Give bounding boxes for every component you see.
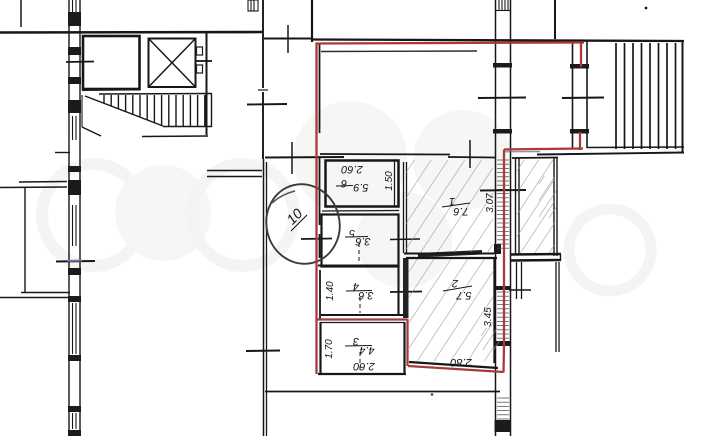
svg-text:2.80: 2.80 (449, 356, 472, 368)
svg-text:1.50: 1.50 (384, 171, 395, 191)
svg-text:3.45: 3.45 (483, 307, 494, 327)
svg-text:4: 4 (353, 280, 359, 292)
svg-text:6: 6 (340, 177, 347, 189)
svg-text:5.7: 5.7 (455, 289, 471, 301)
svg-text:1.70: 1.70 (324, 339, 335, 359)
svg-text:2.60: 2.60 (340, 163, 363, 175)
svg-text:2.60: 2.60 (352, 360, 375, 372)
svg-text:1.40: 1.40 (325, 281, 336, 301)
svg-text:3: 3 (352, 335, 359, 347)
svg-text:3.07: 3.07 (485, 193, 496, 213)
svg-text:2: 2 (452, 277, 459, 289)
svg-text:5.9: 5.9 (353, 181, 368, 193)
svg-text:7.6: 7.6 (452, 205, 468, 217)
